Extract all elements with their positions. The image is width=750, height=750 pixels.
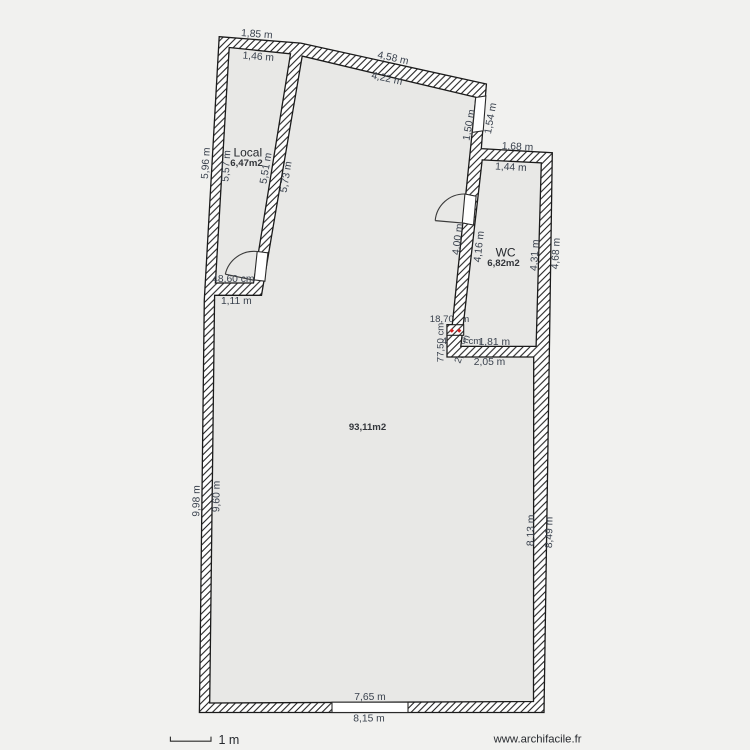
svg-text:1,44 m: 1,44 m: [495, 161, 527, 174]
svg-text:www.archifacile.fr: www.archifacile.fr: [493, 733, 582, 745]
svg-text:7,65 m: 7,65 m: [354, 692, 385, 703]
svg-text:8,13 m: 8,13 m: [526, 515, 538, 547]
svg-text:2,05 m: 2,05 m: [474, 357, 505, 368]
svg-text:77,50 cm: 77,50 cm: [436, 323, 447, 362]
svg-text:4,31 m: 4,31 m: [529, 239, 542, 271]
svg-text:8,15 m: 8,15 m: [353, 714, 384, 725]
svg-text:1,68 m: 1,68 m: [501, 141, 533, 154]
svg-text:1 m: 1 m: [219, 733, 240, 747]
svg-text:6,82m2: 6,82m2: [487, 258, 520, 269]
svg-text:1,11 m: 1,11 m: [221, 296, 252, 307]
svg-text:1,81 m: 1,81 m: [479, 337, 510, 348]
svg-text:9,60 m: 9,60 m: [211, 481, 223, 513]
svg-text:48,60 cm: 48,60 cm: [212, 274, 254, 285]
svg-text:93,11m2: 93,11m2: [349, 422, 386, 433]
svg-text:4,68 m: 4,68 m: [550, 238, 563, 270]
svg-text:9,98 m: 9,98 m: [191, 485, 203, 517]
svg-text:5,96 m: 5,96 m: [200, 147, 213, 179]
svg-text:6,47m2: 6,47m2: [230, 158, 263, 169]
svg-text:8,49 m: 8,49 m: [544, 517, 556, 549]
